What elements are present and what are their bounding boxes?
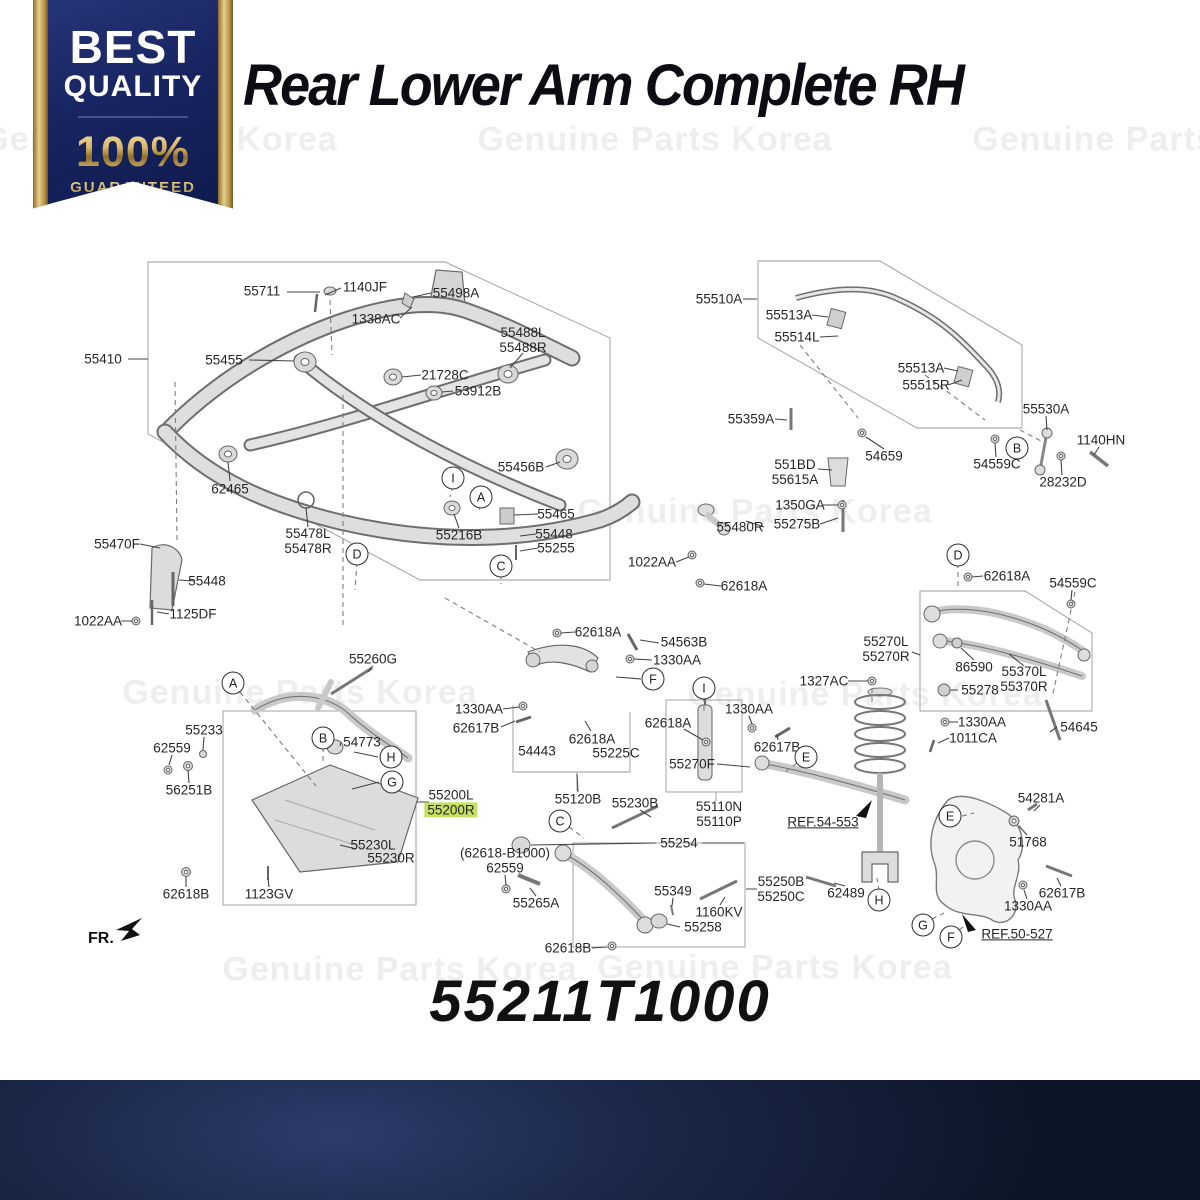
callout-a: A	[470, 486, 493, 509]
callout-g: G	[912, 914, 935, 937]
part-label: 55230B	[612, 795, 659, 810]
part-label: 62618B	[545, 940, 592, 955]
page-title: Rear Lower Arm Complete RH	[243, 52, 963, 119]
part-label: 62618A	[569, 731, 616, 746]
callout-f: F	[642, 668, 665, 691]
part-label: 54645	[1060, 719, 1098, 734]
callout-f: F	[940, 926, 963, 949]
part-label: 1330AA	[653, 652, 701, 667]
part-label: 55513A	[898, 360, 945, 375]
part-label: 53912B	[455, 383, 502, 398]
part-label: 62559	[153, 740, 191, 755]
part-label: 54659	[865, 448, 903, 463]
badge-best-text: BEST	[33, 26, 233, 70]
part-label: 55233	[185, 722, 223, 737]
part-label: 55711	[244, 283, 281, 298]
part-label: 55200L	[428, 787, 473, 802]
part-label: 55278	[961, 682, 999, 697]
part-label: 1330AA	[455, 701, 503, 716]
part-label: 55270L 55270R	[862, 634, 909, 665]
part-label: 62618A	[645, 715, 692, 730]
fr-indicator: FR.	[88, 930, 114, 948]
part-label: 1350GA	[775, 497, 825, 512]
part-label: 1140JF	[343, 279, 387, 294]
part-label: 55230R	[367, 850, 414, 865]
part-label: 551BD 55615A	[772, 457, 819, 488]
callout-g: G	[381, 771, 404, 794]
part-label: 55254	[660, 835, 698, 850]
part-label: 62618A	[721, 578, 768, 593]
callout-b: B	[1006, 437, 1029, 460]
part-label: 56251B	[166, 782, 213, 797]
part-label: (62618-B1000)	[460, 845, 550, 860]
part-label: 51768	[1009, 834, 1047, 849]
part-number: 55211T1000	[429, 968, 770, 1035]
part-label: 55359A	[728, 411, 775, 426]
part-label: 54563B	[661, 634, 708, 649]
part-label: 1160KV	[695, 904, 742, 919]
part-label: 55410	[84, 351, 122, 366]
part-label: 1327AC	[800, 673, 849, 688]
part-label: 1022AA	[628, 554, 676, 569]
part-label: 55275B	[774, 516, 821, 531]
part-label: 62618A	[984, 568, 1031, 583]
callout-e: E	[939, 805, 962, 828]
part-label: 1125DF	[169, 606, 216, 621]
callout-c: C	[490, 555, 513, 578]
part-label: REF.50-527	[981, 926, 1052, 941]
callout-b: B	[312, 727, 335, 750]
part-label: 1022AA	[74, 613, 122, 628]
part-label: 55370L 55370R	[1000, 664, 1047, 695]
part-label: 55448	[535, 526, 573, 541]
part-label: 62489	[827, 885, 865, 900]
part-label: 55349	[654, 883, 692, 898]
part-label: 55255	[537, 540, 575, 555]
part-label: 1330AA	[725, 701, 773, 716]
part-label: 28232D	[1039, 474, 1086, 489]
part-label: 55480R	[716, 519, 763, 534]
part-label: 55514L	[774, 329, 819, 344]
part-label: 1330AA	[1004, 898, 1052, 913]
part-label: 54773	[343, 734, 381, 749]
callout-e: E	[795, 746, 818, 769]
part-label: 55456B	[498, 459, 545, 474]
listing-image: BEST QUALITY 100% GUARANTEED Rear Lower …	[0, 0, 1200, 1200]
part-label: 62617B	[453, 720, 500, 735]
part-label: 54281A	[1018, 790, 1065, 805]
part-label: 62465	[211, 481, 249, 496]
callout-i: I	[442, 467, 465, 490]
part-label: 55216B	[436, 527, 483, 542]
callout-d: D	[346, 543, 369, 566]
part-label: 55455	[205, 352, 243, 367]
callout-h: H	[380, 746, 403, 769]
part-label: 55225C	[592, 745, 639, 760]
part-label: 62618A	[575, 624, 622, 639]
part-label: 54559C	[1049, 575, 1096, 590]
part-label: 55510A	[696, 291, 743, 306]
part-label: 55515R	[902, 377, 949, 392]
callout-i: I	[693, 677, 716, 700]
callout-h: H	[868, 889, 891, 912]
part-label: 55498A	[433, 285, 480, 300]
part-label: 55513A	[766, 307, 813, 322]
part-label: 54443	[518, 743, 556, 758]
part-label: 55270F	[669, 756, 715, 771]
part-label: 21728C	[421, 367, 468, 382]
part-label: 55120B	[555, 791, 602, 806]
part-label: 1011CA	[949, 730, 997, 745]
callout-d: D	[947, 544, 970, 567]
part-label: 62618B	[163, 886, 210, 901]
part-label: 1330AA	[958, 714, 1006, 729]
part-label: 1338AC	[352, 311, 401, 326]
badge-quality-text: QUALITY	[33, 70, 233, 104]
part-label: 55488L 55488R	[499, 325, 546, 356]
bottom-banner: 100% GENUINE FAST DELIVERY FEDEX INTERNA…	[0, 1080, 1200, 1200]
part-label: 55465	[537, 506, 575, 521]
part-label: 55265A	[513, 895, 560, 910]
part-label: REF.54-553	[787, 814, 858, 829]
part-label: 55478L 55478R	[284, 526, 331, 557]
part-label: 55448	[188, 573, 226, 588]
part-label: 1123GV	[245, 886, 294, 901]
part-label: 86590	[955, 659, 993, 674]
part-label: 55110N 55110P	[696, 799, 742, 830]
part-label: 55470F	[94, 536, 140, 551]
badge-divider	[78, 116, 188, 118]
badge-100-text: 100%	[33, 128, 233, 177]
part-label: 55530A	[1023, 401, 1070, 416]
callout-a: A	[222, 672, 245, 695]
callout-c: C	[549, 810, 572, 833]
part-label: 55258	[684, 919, 722, 934]
part-label: 62559	[486, 860, 524, 875]
part-label: 55250B 55250C	[757, 874, 804, 905]
part-label: 1140HN	[1077, 432, 1126, 447]
part-label: 55260G	[349, 651, 397, 666]
part-label: 62617B	[754, 739, 801, 754]
part-label: 55200R	[424, 802, 477, 817]
